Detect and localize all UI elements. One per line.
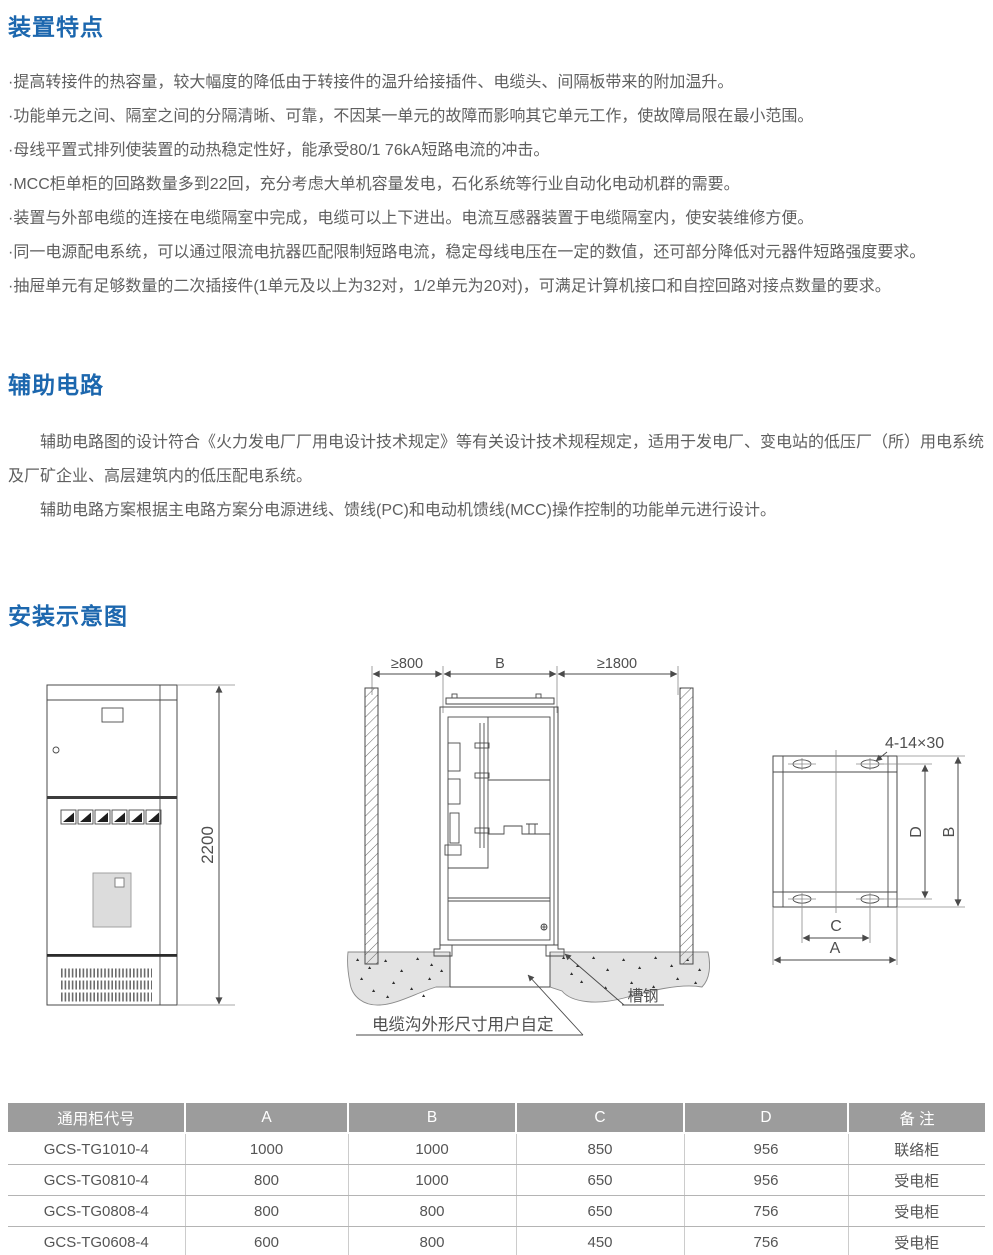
- dim-b-label: B: [941, 827, 958, 838]
- cell-a: 1000: [185, 1133, 348, 1165]
- dim-left-label: ≥800: [391, 656, 423, 672]
- table-row: GCS-TG0810-4 800 1000 650 956 受电柜: [8, 1165, 985, 1196]
- cell-code: GCS-TG0808-4: [8, 1196, 185, 1227]
- cabinet-section: [434, 694, 564, 956]
- feature-item: ·抽屉单元有足够数量的二次插接件(1单元及以上为32对，1/2单元为20对)，可…: [8, 270, 988, 304]
- screw-symbol: [541, 924, 547, 930]
- cabinet-spec-table: 通用柜代号 A B C D 备 注 GCS-TG1010-4 1000 1000…: [8, 1103, 985, 1255]
- dim-c-label: C: [830, 918, 842, 935]
- cell-a: 800: [185, 1196, 348, 1227]
- drawer-units: [445, 743, 461, 855]
- cell-d: 956: [684, 1133, 848, 1165]
- cell-b: 1000: [348, 1165, 516, 1196]
- vertical-dimensions: D B: [879, 756, 965, 907]
- section-title-auxiliary: 辅助电路: [8, 366, 104, 400]
- hole-label: 4-14×30: [885, 735, 944, 752]
- dim-d-label: D: [908, 826, 925, 838]
- height-dim-label: 2200: [198, 826, 217, 864]
- cabinet-outline: [47, 685, 177, 1005]
- installation-section-diagram: ≥800 B ≥1800: [340, 653, 715, 1045]
- section-title-features: 装置特点: [8, 8, 104, 42]
- col-header-a: A: [185, 1103, 348, 1133]
- feature-item: ·装置与外部电缆的连接在电缆隔室中完成，电缆可以上下进出。电流互感器装置于电缆隔…: [8, 202, 988, 236]
- base-frame: [773, 750, 897, 913]
- roof-plate: [446, 698, 554, 704]
- cell-c: 650: [516, 1165, 684, 1196]
- auxiliary-text: 辅助电路图的设计符合《火力发电厂厂用电设计技术规定》等有关设计技术规程规定，适用…: [8, 426, 991, 528]
- mounting-plan-diagram: 4-14×30 D B C A: [735, 698, 993, 975]
- cell-note: 联络柜: [848, 1133, 985, 1165]
- col-header-d: D: [684, 1103, 848, 1133]
- hole-callout: 4-14×30: [876, 735, 944, 761]
- cell-a: 600: [185, 1227, 348, 1255]
- cell-code: GCS-TG1010-4: [8, 1133, 185, 1165]
- document-page: 装置特点 ·提高转接件的热容量，较大幅度的降低由于转接件的温升给接插件、电缆头、…: [0, 0, 993, 1255]
- louver-row: [61, 810, 161, 824]
- cell-code: GCS-TG0810-4: [8, 1165, 185, 1196]
- dim-right-label: ≥1800: [597, 656, 637, 672]
- cell-note: 受电柜: [848, 1165, 985, 1196]
- cell-d: 956: [684, 1165, 848, 1196]
- height-dimension: 2200: [177, 685, 235, 1005]
- cabinet-front-view-diagram: 2200: [30, 662, 245, 1012]
- feature-item: ·母线平置式排列使装置的动热稳定性好，能承受80/1 76kA短路电流的冲击。: [8, 134, 988, 168]
- table-row: GCS-TG1010-4 1000 1000 850 956 联络柜: [8, 1133, 985, 1165]
- table-header-row: 通用柜代号 A B C D 备 注: [8, 1103, 985, 1133]
- cell-code: GCS-TG0608-4: [8, 1227, 185, 1255]
- channel-steel-label: 槽钢: [627, 987, 658, 1005]
- paragraph: 辅助电路方案根据主电路方案分电源进线、馈线(PC)和电动机馈线(MCC)操作控制…: [8, 494, 991, 528]
- feature-item: ·同一电源配电系统，可以通过限流电抗器匹配限制短路电流，稳定母线电压在一定的数值…: [8, 236, 988, 270]
- door-panel: [93, 873, 131, 927]
- dim-mid-label: B: [495, 656, 505, 672]
- table-row: GCS-TG0608-4 600 800 450 756 受电柜: [8, 1227, 985, 1255]
- cell-b: 1000: [348, 1133, 516, 1165]
- panel-divider: [47, 796, 177, 799]
- base-divider: [47, 954, 177, 957]
- cell-c: 450: [516, 1227, 684, 1255]
- cell-note: 受电柜: [848, 1227, 985, 1255]
- feature-item: ·功能单元之间、隔室之间的分隔清晰、可靠，不因某一单元的故障而影响其它单元工作，…: [8, 100, 988, 134]
- col-header-code: 通用柜代号: [8, 1103, 185, 1133]
- paragraph: 辅助电路图的设计符合《火力发电厂厂用电设计技术规定》等有关设计技术规程规定，适用…: [8, 426, 991, 494]
- nameplate: [102, 708, 123, 722]
- feature-item: ·MCC柜单柜的回路数量多到22回，充分考虑大单机容量发电，石化系统等行业自动化…: [8, 168, 988, 202]
- feature-item: ·提高转接件的热容量，较大幅度的降低由于转接件的温升给接插件、电缆头、间隔板带来…: [8, 66, 988, 100]
- busbar: [475, 723, 489, 848]
- cell-a: 800: [185, 1165, 348, 1196]
- door-knob: [53, 747, 59, 753]
- col-header-b: B: [348, 1103, 516, 1133]
- cell-d: 756: [684, 1196, 848, 1227]
- trench-label: 电缆沟外形尺寸用户自定: [372, 1015, 554, 1034]
- cell-d: 756: [684, 1227, 848, 1255]
- horizontal-dimensions: C A: [773, 905, 897, 965]
- cell-b: 800: [348, 1196, 516, 1227]
- cell-b: 800: [348, 1227, 516, 1255]
- col-header-c: C: [516, 1103, 684, 1133]
- cell-note: 受电柜: [848, 1196, 985, 1227]
- connector: [526, 824, 538, 834]
- table-row: GCS-TG0808-4 800 800 650 756 受电柜: [8, 1196, 985, 1227]
- cell-c: 850: [516, 1133, 684, 1165]
- ventilation-grille: [61, 973, 152, 997]
- col-header-note: 备 注: [848, 1103, 985, 1133]
- dim-a-label: A: [830, 940, 841, 957]
- cell-c: 650: [516, 1196, 684, 1227]
- feature-list: ·提高转接件的热容量，较大幅度的降低由于转接件的温升给接插件、电缆头、间隔板带来…: [8, 66, 988, 304]
- section-title-installation: 安装示意图: [8, 597, 128, 631]
